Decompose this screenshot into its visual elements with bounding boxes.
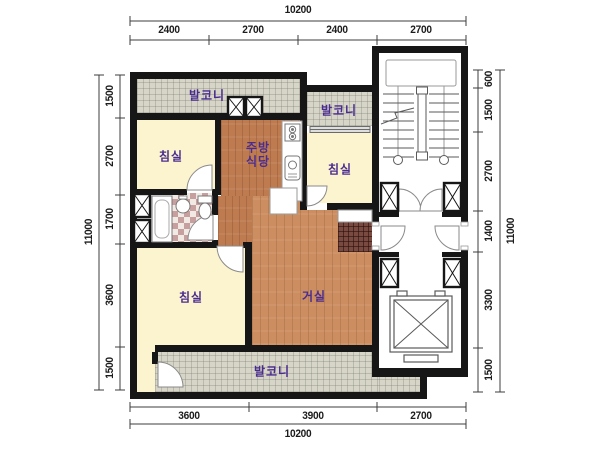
bathtub-icon [152,196,172,242]
kitchen-peninsula [270,188,297,214]
room-label-kitchen-line2: 식당 [246,153,270,170]
dim-bottom-seg-3: 2700 [410,410,431,422]
dim-right-seg-3: 2700 [483,160,495,181]
room-label-bedroom-top-left: 침실 [159,148,183,165]
dim-bottom-seg-1: 3600 [178,410,199,422]
dim-left-total: 11000 [83,219,95,245]
stove-icon [285,124,300,141]
room-label-balcony-top: 발코니 [189,87,225,104]
dim-right-seg-5: 3300 [483,289,495,310]
dim-right-total: 11000 [505,218,517,244]
room-label-bedroom-bottom-left: 침실 [179,289,203,306]
dim-left-seg-1: 1500 [104,85,116,106]
dim-top-seg-4: 2700 [410,24,431,36]
dim-left-seg-2: 2700 [104,145,116,166]
room-label-living-room: 거실 [302,288,326,305]
dim-top-seg-2: 2700 [242,24,263,36]
dim-bottom-total: 10200 [285,428,312,440]
dim-right-seg-2: 1500 [483,99,495,120]
stairs-icon [381,60,459,165]
elevator-icon [390,291,452,362]
dim-top-seg-3: 2400 [326,24,347,36]
dim-right-seg-1: 600 [483,71,495,87]
room-label-bedroom-right: 침실 [328,161,352,178]
washbasin-icon [176,196,190,213]
floor-plan: 발코니 발코니 침실 주방 식당 침실 침실 거실 발코니 10200 2400… [0,0,600,449]
room-label-balcony-upper-right: 발코니 [321,102,357,119]
dim-bottom-seg-2: 3900 [302,410,323,422]
dim-left-seg-4: 3600 [104,284,116,305]
kitchen-sink-icon [285,156,300,180]
toilet-icon [198,196,212,219]
shoe-cabinet [338,210,372,222]
dim-top-total: 10200 [285,4,312,16]
room-label-balcony-bottom: 발코니 [254,363,290,380]
dim-right-seg-4: 1400 [483,220,495,241]
dim-right-seg-6: 1500 [483,359,495,380]
dim-left-seg-5: 1500 [104,357,116,378]
dim-top-seg-1: 2400 [158,24,179,36]
dim-left-seg-3: 1700 [104,208,116,229]
